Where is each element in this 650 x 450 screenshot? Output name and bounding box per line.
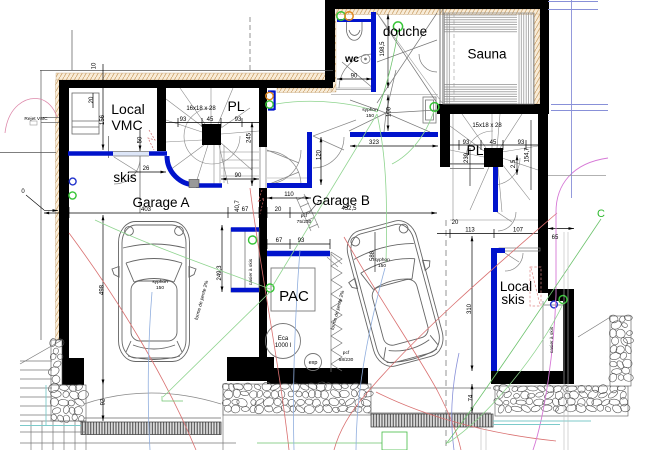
svg-text:110: 110 bbox=[284, 192, 294, 198]
svg-text:120: 120 bbox=[317, 149, 323, 160]
svg-text:casier à skis: casier à skis bbox=[248, 258, 254, 285]
svg-text:1000 l: 1000 l bbox=[275, 343, 291, 349]
svg-text:75/230: 75/230 bbox=[297, 219, 312, 225]
svg-text:93: 93 bbox=[235, 117, 242, 123]
svg-text:45: 45 bbox=[207, 117, 214, 123]
svg-text:syphon: syphon bbox=[362, 107, 378, 113]
svg-text:pcf: pcf bbox=[301, 213, 308, 219]
svg-text:50: 50 bbox=[138, 136, 144, 143]
svg-text:Eca: Eca bbox=[278, 336, 289, 342]
svg-text:67: 67 bbox=[276, 238, 283, 244]
svg-text:150: 150 bbox=[156, 285, 164, 291]
svg-text:498: 498 bbox=[100, 284, 106, 295]
svg-text:45: 45 bbox=[490, 140, 497, 146]
svg-text:68/230: 68/230 bbox=[339, 357, 354, 363]
svg-text:93: 93 bbox=[463, 140, 470, 146]
svg-text:syphon: syphon bbox=[152, 279, 168, 285]
svg-text:2,5: 2,5 bbox=[511, 159, 517, 168]
svg-text:16x18 x 28: 16x18 x 28 bbox=[186, 106, 216, 112]
svg-text:40,7: 40,7 bbox=[235, 200, 241, 212]
svg-text:198,5: 198,5 bbox=[380, 41, 386, 57]
svg-text:PL: PL bbox=[227, 98, 244, 114]
svg-text:Sauna: Sauna bbox=[467, 47, 507, 62]
svg-text:323: 323 bbox=[369, 140, 380, 146]
svg-text:100: 100 bbox=[387, 106, 393, 117]
svg-text:93: 93 bbox=[518, 140, 525, 146]
svg-text:150: 150 bbox=[378, 263, 386, 269]
svg-text:90: 90 bbox=[351, 74, 358, 80]
svg-text:74: 74 bbox=[469, 394, 475, 401]
svg-text:239: 239 bbox=[464, 152, 470, 163]
svg-text:245: 245 bbox=[247, 132, 253, 143]
svg-text:20: 20 bbox=[89, 96, 95, 103]
svg-text:403: 403 bbox=[141, 207, 152, 213]
svg-text:20: 20 bbox=[275, 207, 282, 213]
svg-text:20: 20 bbox=[452, 220, 459, 226]
svg-text:douche: douche bbox=[383, 24, 427, 39]
svg-text:249,3: 249,3 bbox=[217, 265, 223, 281]
svg-text:pcf: pcf bbox=[343, 350, 350, 356]
svg-text:113: 113 bbox=[465, 228, 475, 234]
svg-text:syphon: syphon bbox=[374, 257, 390, 263]
svg-text:skis: skis bbox=[501, 292, 524, 307]
svg-text:107: 107 bbox=[513, 228, 524, 234]
svg-text:93: 93 bbox=[298, 238, 305, 244]
svg-text:93: 93 bbox=[180, 117, 187, 123]
svg-text:310: 310 bbox=[467, 303, 473, 314]
svg-text:154,7: 154,7 bbox=[525, 147, 531, 163]
svg-text:Rejet VMC: Rejet VMC bbox=[24, 116, 48, 122]
svg-text:wc: wc bbox=[344, 53, 359, 65]
svg-text:casier à skis: casier à skis bbox=[549, 326, 555, 353]
svg-text:26: 26 bbox=[143, 166, 150, 172]
svg-text:432,5: 432,5 bbox=[341, 206, 357, 212]
svg-text:67: 67 bbox=[242, 207, 249, 213]
svg-text:VMC: VMC bbox=[111, 117, 142, 133]
svg-text:skis: skis bbox=[113, 170, 136, 185]
svg-text:65: 65 bbox=[552, 235, 559, 241]
svg-text:PAC: PAC bbox=[279, 288, 309, 305]
svg-text:10: 10 bbox=[92, 62, 98, 69]
svg-text:92: 92 bbox=[101, 398, 107, 405]
svg-text:90: 90 bbox=[235, 173, 242, 179]
svg-text:15x18 x 28: 15x18 x 28 bbox=[472, 123, 502, 129]
svg-text:Local: Local bbox=[111, 101, 144, 117]
svg-text:150: 150 bbox=[366, 113, 374, 119]
svg-text:156: 156 bbox=[100, 114, 106, 125]
svg-text:exp: exp bbox=[309, 360, 318, 366]
svg-text:C: C bbox=[597, 208, 605, 220]
